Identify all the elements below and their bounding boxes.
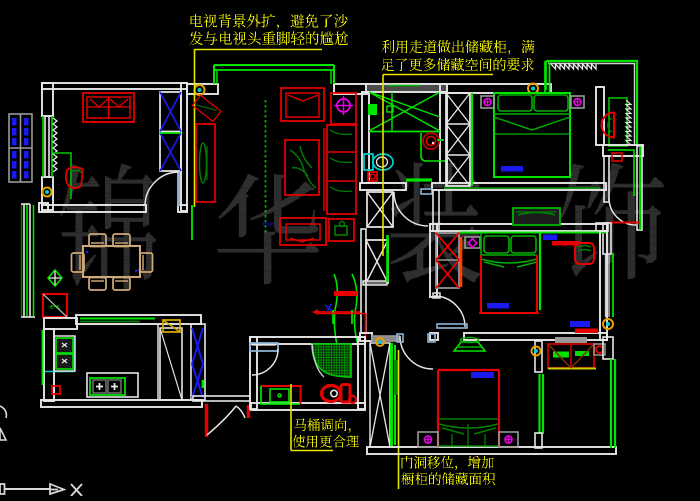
svg-text:Exx: Exx <box>263 222 273 228</box>
svg-text:e-s: e-s <box>50 304 60 311</box>
